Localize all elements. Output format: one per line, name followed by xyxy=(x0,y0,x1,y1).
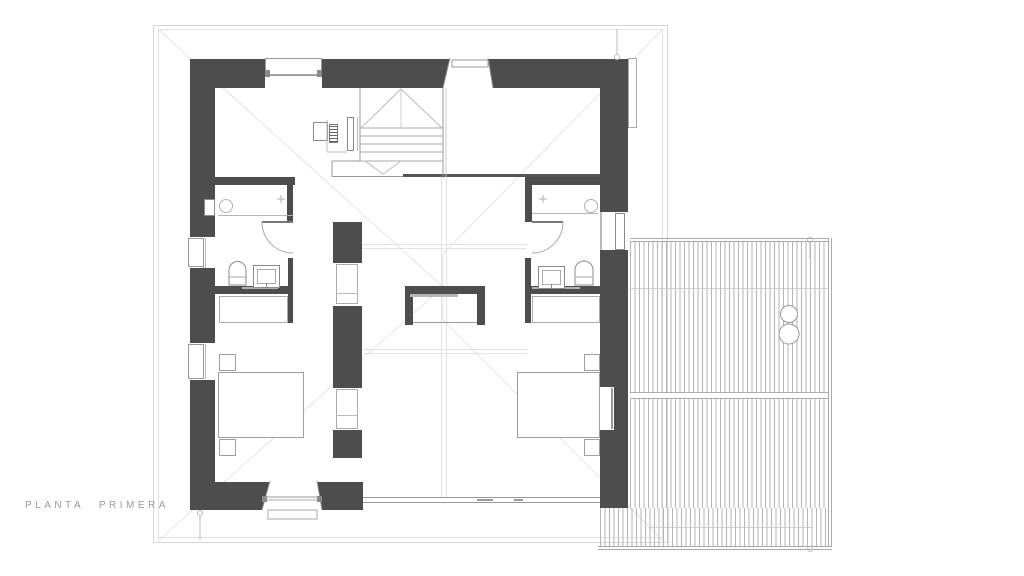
bathL-door-arc xyxy=(262,222,293,253)
shower-drain-left xyxy=(220,200,233,213)
bathR-door-arc xyxy=(532,222,563,253)
plan-title: PLANTA PRIMERA xyxy=(25,500,169,511)
level-cross-marks xyxy=(277,195,547,203)
shower-drain-right xyxy=(585,200,598,213)
floor-plan-canvas: PLANTA PRIMERA xyxy=(0,0,1024,576)
terrace-stools xyxy=(779,306,799,345)
staircase xyxy=(327,88,446,178)
window-top-splayed xyxy=(443,58,493,88)
reference-markers xyxy=(198,29,813,552)
window-bottom-splayed xyxy=(262,481,322,519)
toilet-left xyxy=(229,262,246,286)
toilet-right xyxy=(575,261,593,285)
linework-overlay xyxy=(0,0,1024,576)
